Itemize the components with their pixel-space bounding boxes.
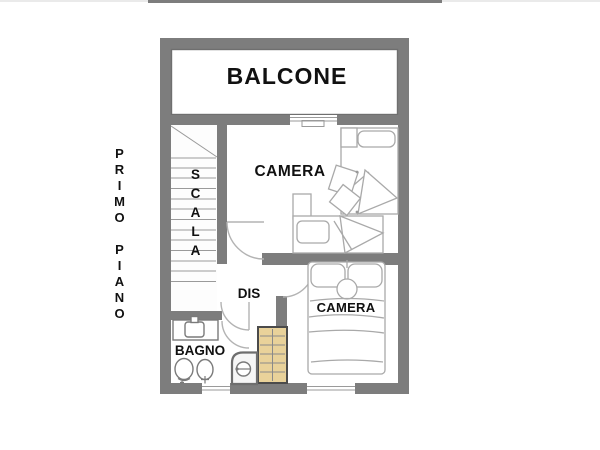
round-cushion-icon bbox=[337, 279, 357, 299]
dis-bedroom-wall bbox=[276, 296, 287, 327]
single-bed-1-pillow bbox=[358, 131, 395, 147]
window-bagno bbox=[202, 383, 230, 394]
single-bed-2-pillow bbox=[297, 221, 329, 243]
window-camera-bottom-opening bbox=[307, 383, 355, 394]
room-label-camera-top: CAMERA bbox=[250, 163, 330, 181]
room-label-bagno: BAGNO bbox=[172, 343, 228, 358]
sink-basin bbox=[185, 322, 204, 337]
sink-icon bbox=[173, 317, 218, 341]
room-label-scala: SCALA bbox=[188, 167, 203, 262]
floor-title: PRIMO PIANO bbox=[112, 146, 127, 322]
balcony-bottom-wall-left bbox=[160, 115, 290, 125]
desk-dot bbox=[356, 171, 359, 174]
window-bagno-opening bbox=[202, 383, 230, 394]
room-label-balcone: BALCONE bbox=[213, 63, 361, 90]
nightstand-icon bbox=[293, 194, 311, 219]
outer-wall-top bbox=[160, 38, 409, 49]
floor-plan-page: PRIMO PIANO BALCONE SCALA CAMERA CAMERA … bbox=[0, 0, 600, 450]
toilet-icon bbox=[175, 359, 193, 385]
double-bed bbox=[308, 260, 385, 374]
toilet-bowl bbox=[175, 359, 193, 380]
shower-icon bbox=[232, 353, 257, 385]
balcony-bottom-wall-right bbox=[337, 115, 409, 125]
shower-head-knob bbox=[235, 367, 238, 370]
window-camera-bottom bbox=[307, 383, 355, 394]
room-label-camera-bottom: CAMERA bbox=[314, 300, 378, 315]
outer-wall-bottom bbox=[160, 383, 409, 394]
door-arc-camera-top bbox=[227, 222, 264, 259]
outer-wall-left bbox=[160, 38, 171, 394]
sink-tap bbox=[191, 317, 198, 323]
outer-wall-right bbox=[398, 38, 409, 394]
balcony-door bbox=[290, 115, 337, 127]
chair-dot bbox=[356, 211, 359, 214]
door-arc-bagno-dis-side bbox=[221, 302, 249, 330]
room-label-dis: DIS bbox=[231, 286, 267, 301]
bidet-icon bbox=[197, 360, 213, 384]
single-bed-1-headboard bbox=[341, 128, 357, 147]
wardrobe-icon bbox=[258, 327, 287, 383]
stairs-right-wall bbox=[217, 125, 227, 264]
